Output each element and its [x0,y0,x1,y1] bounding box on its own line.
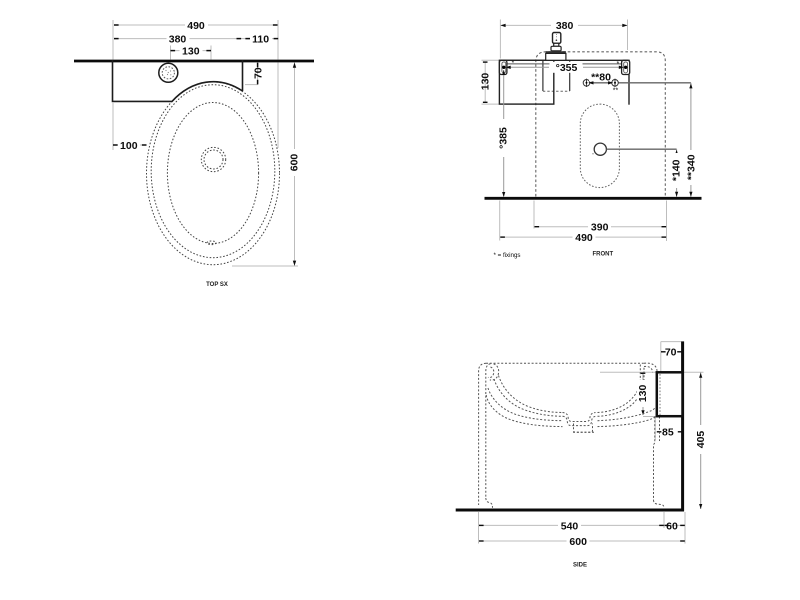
svg-text:70: 70 [252,67,264,79]
svg-text:130: 130 [480,73,492,91]
svg-text:**340: **340 [686,154,698,180]
svg-text:60: 60 [666,520,678,532]
svg-text:600: 600 [569,536,587,548]
svg-text:*140: *140 [671,159,683,181]
svg-text:130: 130 [182,45,200,57]
svg-text:110: 110 [252,33,269,45]
svg-text:**: ** [613,88,619,95]
svg-text:°355: °355 [556,62,578,74]
svg-text:130: 130 [637,384,649,402]
svg-text:* = fixings: * = fixings [494,252,521,259]
svg-text:600: 600 [289,154,301,172]
svg-text:TOP SX: TOP SX [206,282,228,288]
svg-text:405: 405 [695,431,707,449]
svg-text:°385: °385 [498,127,510,149]
svg-text:70: 70 [665,347,677,359]
svg-text:FRONT: FRONT [592,252,613,258]
svg-text:SIDE: SIDE [573,563,587,569]
svg-text:*: * [512,60,515,67]
svg-text:380: 380 [169,33,187,45]
svg-text:490: 490 [187,20,205,32]
svg-text:490: 490 [575,232,593,244]
svg-text:380: 380 [556,20,574,32]
svg-text:100: 100 [120,140,138,152]
svg-text:85: 85 [662,427,674,439]
svg-text:540: 540 [561,520,579,532]
svg-text:*: * [617,61,620,68]
svg-text:**80: **80 [591,71,611,83]
